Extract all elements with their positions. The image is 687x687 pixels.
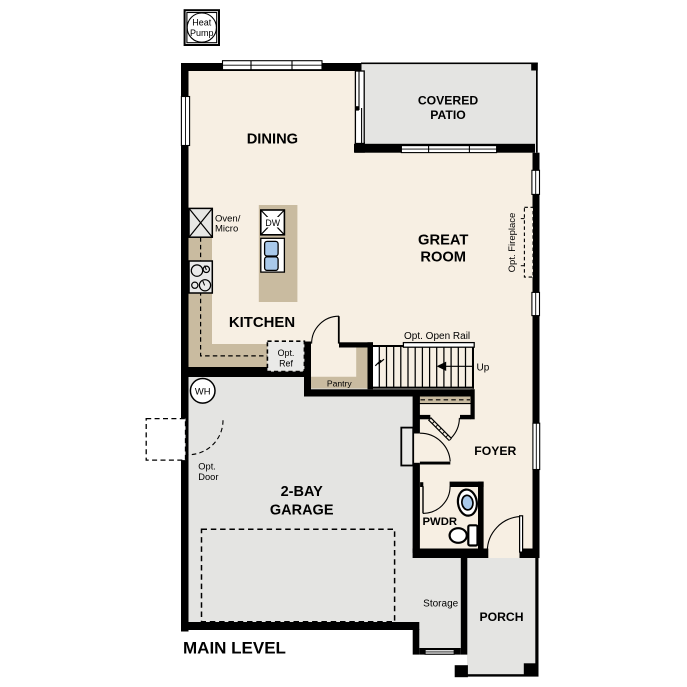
svg-text:DW: DW: [265, 218, 280, 228]
svg-text:Storage: Storage: [423, 599, 458, 610]
svg-text:KITCHEN: KITCHEN: [229, 315, 295, 331]
svg-text:MAIN LEVEL: MAIN LEVEL: [183, 639, 286, 658]
svg-text:PATIO: PATIO: [430, 108, 465, 122]
svg-text:PWDR: PWDR: [423, 516, 458, 528]
svg-text:FOYER: FOYER: [474, 444, 516, 458]
svg-text:COVERED: COVERED: [418, 94, 478, 108]
svg-text:ROOM: ROOM: [420, 249, 466, 265]
svg-text:PORCH: PORCH: [479, 610, 523, 624]
svg-text:DINING: DINING: [247, 131, 298, 147]
svg-text:Opt. Fireplace: Opt. Fireplace: [507, 213, 518, 273]
svg-text:Pantry: Pantry: [327, 378, 353, 388]
svg-text:2-BAY: 2-BAY: [281, 484, 324, 500]
svg-text:Opt. Open Rail: Opt. Open Rail: [404, 331, 470, 342]
svg-text:GARAGE: GARAGE: [270, 503, 334, 519]
svg-text:Door: Door: [198, 472, 218, 482]
svg-text:Micro: Micro: [215, 223, 238, 234]
svg-text:Pump: Pump: [190, 28, 214, 38]
svg-text:WH: WH: [195, 385, 211, 396]
svg-text:Ref: Ref: [279, 359, 293, 369]
svg-text:Opt.: Opt.: [198, 462, 216, 472]
svg-text:Heat: Heat: [192, 18, 212, 28]
svg-text:Up: Up: [477, 363, 490, 374]
svg-text:Opt.: Opt.: [278, 348, 295, 358]
svg-text:GREAT: GREAT: [418, 232, 468, 248]
